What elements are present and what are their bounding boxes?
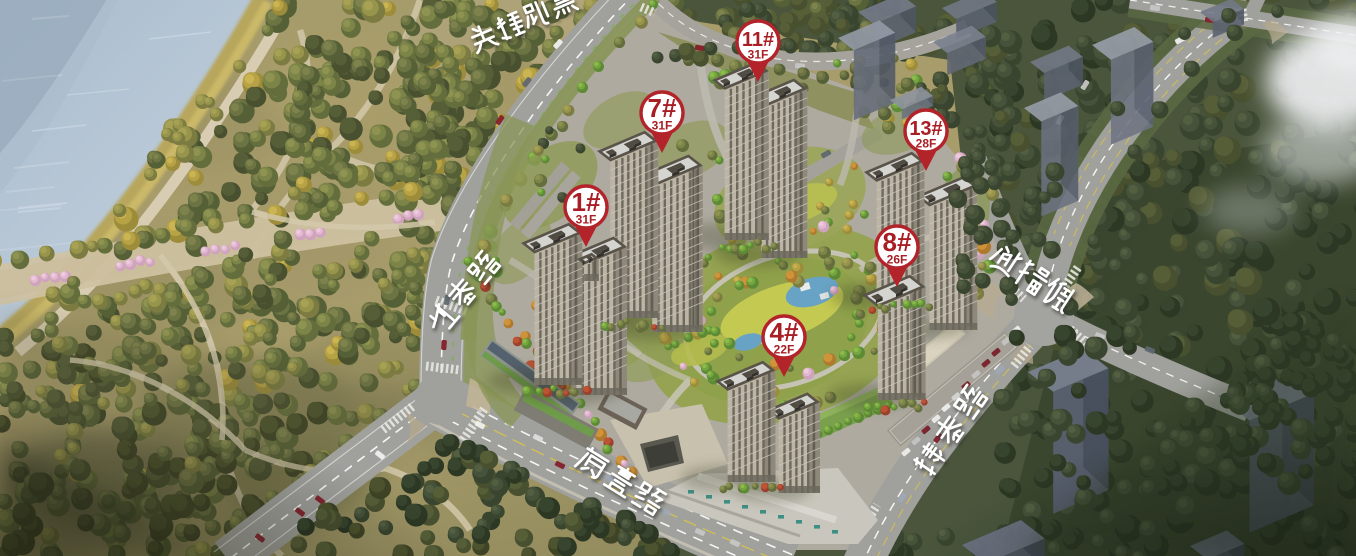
svg-text:31F: 31F: [652, 119, 673, 133]
svg-text:28F: 28F: [916, 137, 937, 151]
svg-text:31F: 31F: [576, 213, 597, 227]
svg-text:22F: 22F: [774, 343, 795, 357]
svg-text:26F: 26F: [887, 253, 908, 267]
svg-text:31F: 31F: [748, 48, 769, 62]
